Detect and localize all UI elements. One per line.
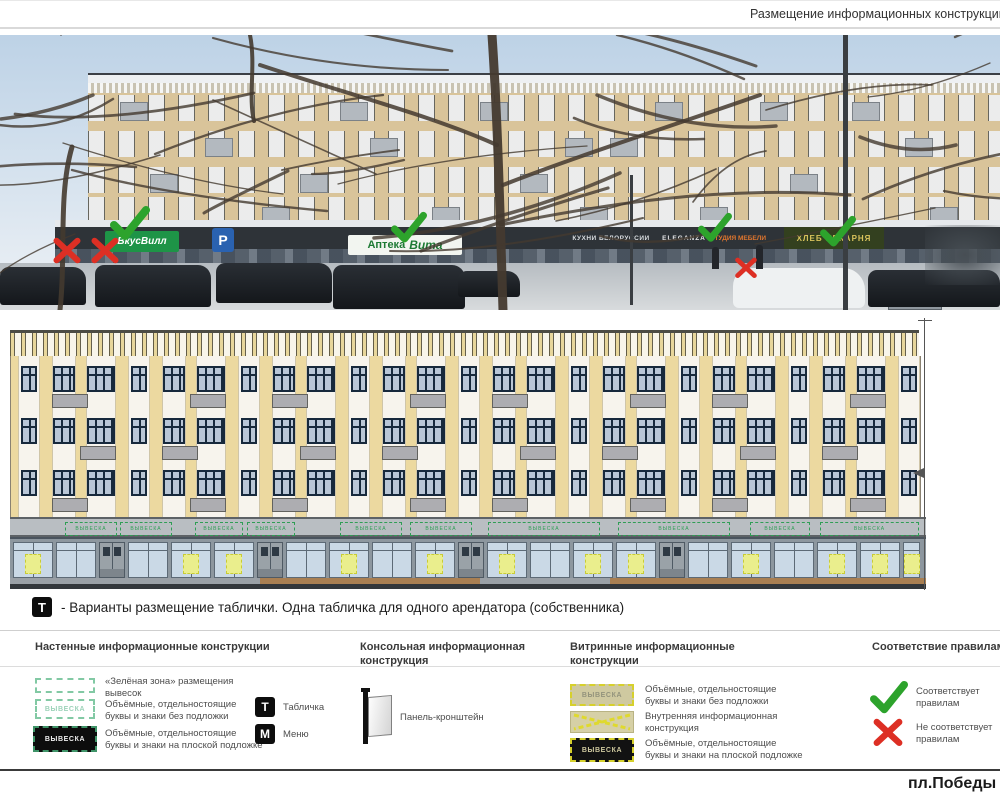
compliance-check-mark [391,211,427,248]
balcony-panel [410,498,446,512]
window [901,366,917,392]
footer-divider [0,769,1000,771]
balcony-panel [272,394,308,408]
window-transom [683,374,695,376]
window-transom [639,426,663,428]
fascia-sign-zone: ВЫВЕСКА [65,522,117,536]
storefront-pane [286,542,326,578]
door-window [103,547,110,556]
vitrina-construction [341,554,357,574]
storefront-pane [56,542,96,578]
vitrina-construction [499,554,515,574]
window-transom [133,374,145,376]
window [197,470,225,496]
window [681,470,697,496]
pane-mullion [708,543,709,577]
window-transom [23,478,35,480]
window [747,366,775,392]
window [241,470,257,496]
dimension-arrow [913,468,924,478]
window-transom [749,374,773,376]
vitrine-inner-swatch [570,711,634,733]
window-transom [419,478,443,480]
window [21,470,37,496]
window [603,470,625,496]
window-transom [165,374,183,376]
window-transom [419,426,443,428]
wall-letters-swatch: ВЫВЕСКА [35,699,95,719]
vitrina-construction [25,554,41,574]
elevation-storefront [10,537,926,578]
window-transom [749,426,773,428]
window [21,418,37,444]
window-transom [243,478,255,480]
window [131,470,147,496]
legend-label: Внутренняя информационная конструкция [645,711,805,736]
window-transom [793,426,805,428]
tablichka-note: Т - Варианты размещение таблички. Одна т… [32,597,624,617]
storefront-pane [487,542,527,578]
cross-mark-icon [734,257,758,279]
window-transom [793,374,805,376]
door-window [272,547,279,556]
window-transom [683,426,695,428]
window-transom [529,374,553,376]
door-window [462,547,469,556]
window [637,418,665,444]
window [417,470,445,496]
balcony-panel [712,498,748,512]
window-transom [385,478,403,480]
window [637,366,665,392]
window [273,470,295,496]
elevation-cornice [10,333,919,358]
bracket-pole-icon [363,690,368,744]
compliance-cross-mark [734,257,758,284]
window [637,470,665,496]
window [857,470,885,496]
window [163,366,185,392]
door-kick [660,569,684,577]
legend-label: Объёмные, отдельностоящие буквы и знаки … [105,728,265,753]
elevation-facade [10,356,921,517]
door-kick [258,569,282,577]
window [383,470,405,496]
window [493,470,515,496]
window [53,418,75,444]
compliance-check-mark [820,215,856,252]
window-transom [903,374,915,376]
note-text: - Варианты размещение таблички. Одна таб… [61,600,624,615]
window-transom [573,426,585,428]
balcony-panel [52,498,88,512]
window [163,418,185,444]
legend-label: Объёмные, отдельностоящие буквы и знаки … [645,684,805,709]
pane-mullion [76,543,77,577]
balcony-panel [850,394,886,408]
window-transom [825,374,843,376]
storefront-pane [415,542,455,578]
window-transom [715,478,733,480]
window [307,418,335,444]
window-transom [573,478,585,480]
window-transom [495,478,513,480]
window-transom [639,478,663,480]
fascia-sign-zone: ВЫВЕСКА [820,522,919,536]
window [603,418,625,444]
balcony-panel [162,446,198,460]
title-divider [0,27,1000,29]
window [527,418,555,444]
t-badge-legend: Т [255,697,275,717]
window [527,366,555,392]
fascia-sign-zone: ВЫВЕСКА [340,522,402,536]
vitrina-construction [904,554,920,574]
window [527,470,555,496]
window [53,366,75,392]
window-transom [243,374,255,376]
window-transom [309,478,333,480]
wall-backing-swatch: ВЫВЕСКА [33,726,97,752]
window-transom [605,426,623,428]
balcony-panel [52,394,88,408]
window [87,366,115,392]
m-badge-legend: М [255,724,275,744]
pane-mullion [392,543,393,577]
door-kick [459,569,483,577]
fascia-sign-zone: ВЫВЕСКА [618,522,730,536]
balcony-panel [382,446,418,460]
window [571,366,587,392]
window-transom [243,426,255,428]
window [21,366,37,392]
storefront-door [458,542,484,578]
cross-mark-icon [872,718,904,747]
window-transom [199,374,223,376]
window-transom [133,478,145,480]
storefront-pane [372,542,412,578]
legend-divider [0,630,1000,631]
storefront-pane [774,542,814,578]
door-window [663,547,670,556]
fascia-sign-zone: ВЫВЕСКА [120,522,172,536]
window-transom [715,374,733,376]
fascia-sign-zone: ВЫВЕСКА [488,522,600,536]
window-transom [715,426,733,428]
window [197,366,225,392]
window [417,418,445,444]
cross-icon [872,718,904,752]
vitrina-construction [872,554,888,574]
check-mark-icon [391,211,427,243]
window [493,418,515,444]
door-window [261,547,268,556]
window [351,418,367,444]
vitrine-backing-swatch: ВЫВЕСКА [570,738,634,762]
window-transom [89,478,113,480]
window [131,366,147,392]
balcony-panel [272,498,308,512]
window-transom [605,478,623,480]
window-transom [529,478,553,480]
window [461,366,477,392]
balcony-panel [602,446,638,460]
vitrina-construction [183,554,199,574]
balcony-panel [520,446,556,460]
window [823,470,845,496]
door-window [114,547,121,556]
storefront-pane [214,542,254,578]
cross-mark-icon [52,237,82,264]
window [273,366,295,392]
legend-label: Меню [283,729,309,741]
balcony-panel [492,394,528,408]
window-transom [55,426,73,428]
window [273,418,295,444]
window [461,470,477,496]
window-transom [903,478,915,480]
window [713,418,735,444]
storefront-pane [860,542,900,578]
legend-label: Табличка [283,702,324,714]
window [163,470,185,496]
window-transom [165,426,183,428]
vitrine-letters-swatch: ВЫВЕСКА [570,684,634,706]
window [131,418,147,444]
window [87,418,115,444]
dimension-line [924,318,925,590]
vitrina-construction [585,554,601,574]
check-mark-icon [698,212,732,243]
legend-label: Объёмные, отдельностоящие буквы и знаки … [105,699,265,724]
window-transom [275,374,293,376]
window [307,470,335,496]
window [493,366,515,392]
vitrina-construction [628,554,644,574]
window-transom [165,478,183,480]
storefront-door [257,542,283,578]
window [351,470,367,496]
window [307,366,335,392]
window-transom [385,426,403,428]
window [747,470,775,496]
balcony-panel [80,446,116,460]
window [681,366,697,392]
door-window [473,547,480,556]
vitrina-construction [427,554,443,574]
window [383,366,405,392]
legend-label: «Зелёная зона» размещения вывесок [105,676,265,701]
legend-label: Объёмные, отдельностоящие буквы и знаки … [645,738,805,763]
fascia-sign-zone: ВЫВЕСКА [247,522,295,536]
window-transom [463,478,475,480]
window-transom [55,374,73,376]
window-transom [55,478,73,480]
balcony-panel [300,446,336,460]
window-transom [199,426,223,428]
window-transom [825,426,843,428]
window-transom [309,374,333,376]
window [461,418,477,444]
window-transom [495,426,513,428]
door-window [674,547,681,556]
street-photo: ВкусВилл Р АптекаВита КУХНИ БЕЛОРУССИИ E… [0,35,1000,310]
balcony-panel [822,446,858,460]
pane-mullion [148,543,149,577]
window-transom [903,426,915,428]
window-transom [573,374,585,376]
window-transom [463,426,475,428]
balcony-panel [492,498,528,512]
window-transom [825,478,843,480]
window [603,366,625,392]
fascia-sign-zone: ВЫВЕСКА [410,522,472,536]
window-transom [859,374,883,376]
window [713,366,735,392]
window [351,366,367,392]
storefront-door [99,542,125,578]
pane-mullion [306,543,307,577]
check-mark-icon [870,680,908,714]
legend-compliance-title: Соответствие правилам [872,640,1000,654]
balcony-panel [740,446,776,460]
window [791,366,807,392]
window [747,418,775,444]
check-mark-icon [820,215,856,247]
yellow-cross-icon [572,713,632,731]
pane-transom [904,550,919,551]
storefront-pane [573,542,613,578]
window-transom [309,426,333,428]
window [383,418,405,444]
window [417,366,445,392]
window-transom [275,426,293,428]
balcony-panel [190,394,226,408]
legend-wall-title: Настенные информационные конструкции [35,640,335,654]
storefront-door [659,542,685,578]
vitrina-construction [226,554,242,574]
window [197,418,225,444]
elevation-ground-line [10,584,926,589]
window [241,366,257,392]
legend-vitrine-title: Витринные информационные конструкции [570,640,790,669]
window-transom [23,374,35,376]
window [823,366,845,392]
balcony-panel [850,498,886,512]
balcony-panel [630,498,666,512]
window-transom [353,478,365,480]
window [241,418,257,444]
bracket-cap-icon [361,688,370,692]
storefront-pane [171,542,211,578]
window-transom [749,478,773,480]
window [87,470,115,496]
page-title: Размещение информационных конструкций [750,7,1000,21]
legend-label: Панель-кронштейн [400,712,484,724]
pane-mullion [550,543,551,577]
storefront-pane [688,542,728,578]
vitrina-construction [743,554,759,574]
green-zone-swatch [35,678,95,693]
bracket-panel-icon [368,695,392,737]
legend-label: Не соответствует правилам [916,722,1000,747]
fascia-sign-zone: ВЫВЕСКА [195,522,243,536]
window-transom [639,374,663,376]
storefront-pane [13,542,53,578]
legend-console-title: Консольная информационная конструкция [360,640,550,669]
balcony-panel [630,394,666,408]
footer-location: пл.Победы [908,775,996,793]
storefront-pane [731,542,771,578]
window-transom [529,426,553,428]
window-transom [419,374,443,376]
window [791,470,807,496]
window-transom [199,478,223,480]
pane-mullion [794,543,795,577]
window-transom [23,426,35,428]
check-icon [870,680,908,719]
balcony-panel [190,498,226,512]
window-transom [859,478,883,480]
page-top-edge [0,0,1000,1]
window [681,418,697,444]
storefront-pane [817,542,857,578]
balcony-panel [410,394,446,408]
window-transom [89,426,113,428]
storefront-pane [128,542,168,578]
window [857,366,885,392]
window-transom [385,374,403,376]
window [571,418,587,444]
window [571,470,587,496]
door-kick [100,569,124,577]
vitrina-construction [829,554,845,574]
window [791,418,807,444]
compliance-check-mark [110,205,150,246]
compliance-cross-mark [52,237,82,269]
window-transom [463,374,475,376]
balcony-panel [712,394,748,408]
dimension-tick [918,320,932,321]
t-badge: Т [32,597,52,617]
compliance-check-mark [698,212,732,248]
storefront-pane [903,542,920,578]
window-transom [133,426,145,428]
window-transom [495,374,513,376]
check-mark-icon [110,205,150,241]
window-transom [605,374,623,376]
window-transom [353,426,365,428]
window-transom [793,478,805,480]
legend-label: Соответствует правилам [916,686,1000,711]
window-transom [859,426,883,428]
tree-branches [0,35,1000,310]
window [713,470,735,496]
window [53,470,75,496]
window-transom [353,374,365,376]
window-transom [275,478,293,480]
elevation-fascia: ВЫВЕСКАВЫВЕСКАВЫВЕСКАВЫВЕСКАВЫВЕСКАВЫВЕС… [10,517,926,537]
window [901,418,917,444]
window [823,418,845,444]
fascia-sign-zone: ВЫВЕСКА [750,522,810,536]
storefront-pane [329,542,369,578]
window-transom [89,374,113,376]
building-elevation-drawing: ВЫВЕСКАВЫВЕСКАВЫВЕСКАВЫВЕСКАВЫВЕСКАВЫВЕС… [10,318,926,592]
storefront-pane [530,542,570,578]
storefront-pane [616,542,656,578]
window [857,418,885,444]
